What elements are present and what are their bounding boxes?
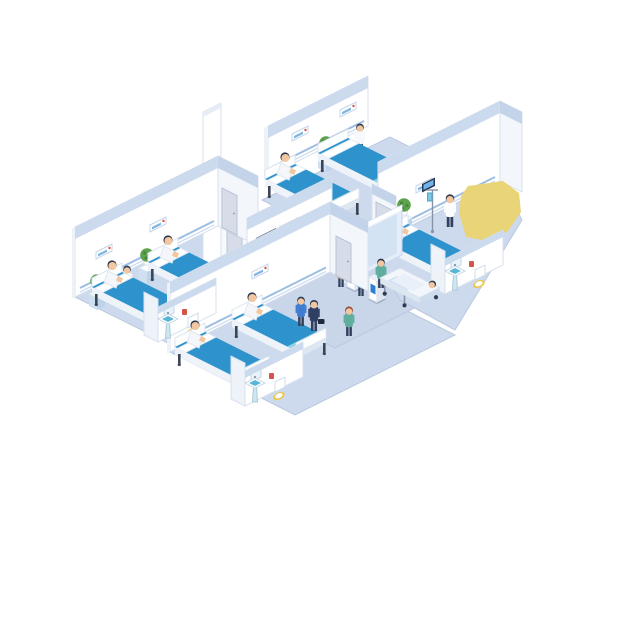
iv-bag	[428, 193, 433, 201]
hospital-illustration	[0, 0, 640, 640]
isometric-hospital-scene	[0, 0, 640, 640]
briefcase	[318, 319, 325, 324]
iv-base	[431, 230, 434, 233]
door-lower-ward	[336, 236, 351, 283]
stretcher-wheel	[402, 303, 406, 307]
stretcher-wheel	[383, 292, 387, 296]
stretcher-patient-face	[429, 282, 435, 288]
stretcher-wheel	[434, 295, 438, 299]
door-upper-ward	[222, 188, 237, 235]
wall-upper-left-endcap	[72, 227, 75, 299]
